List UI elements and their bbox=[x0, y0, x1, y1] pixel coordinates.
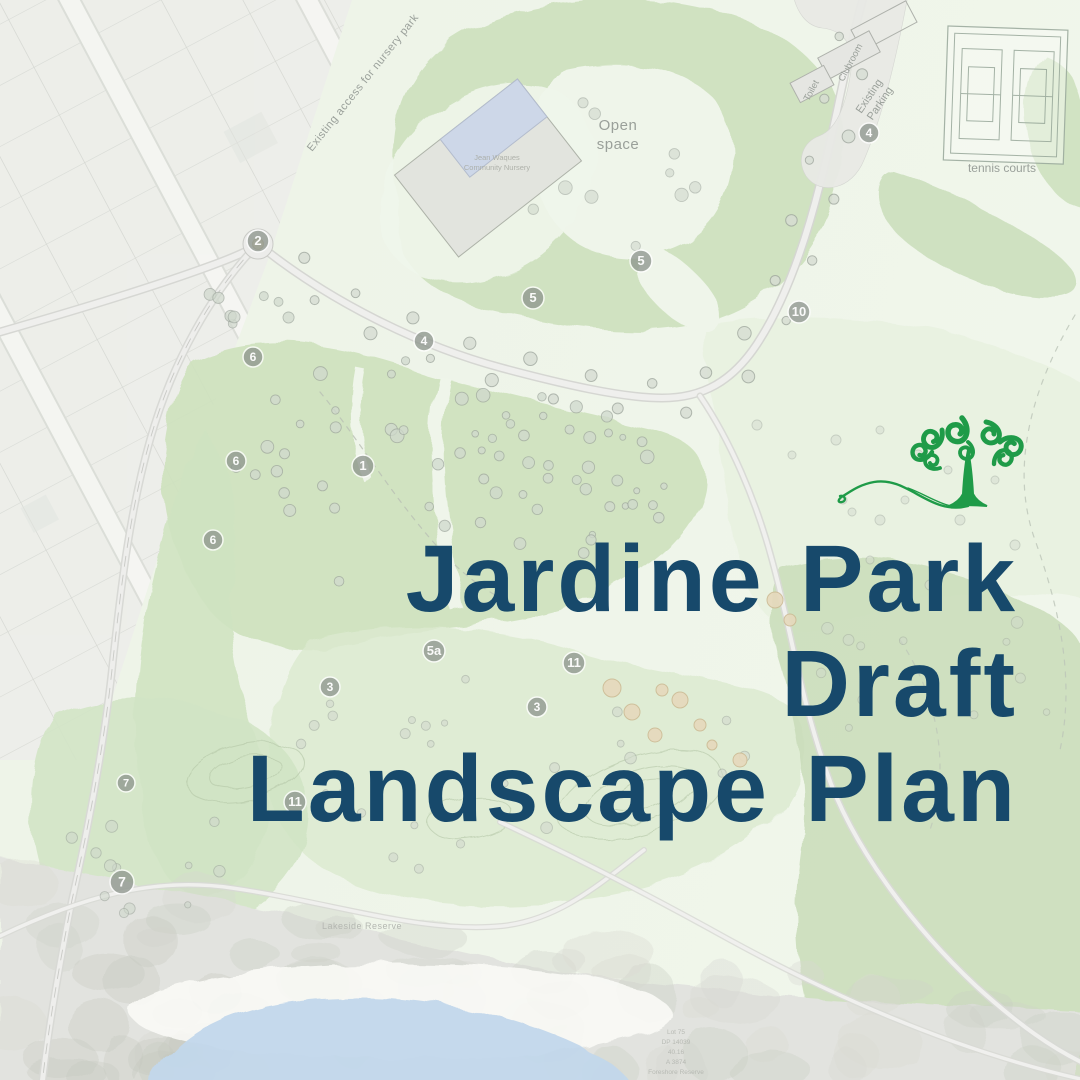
plan-marker: 2 bbox=[247, 230, 269, 252]
svg-text:A 3874: A 3874 bbox=[666, 1059, 687, 1066]
svg-text:6: 6 bbox=[233, 454, 240, 468]
plan-marker: 4 bbox=[414, 331, 434, 351]
poster: 245541066615a11337711 Openspace tennis c… bbox=[0, 0, 1080, 1080]
plan-marker: 10 bbox=[788, 301, 810, 323]
svg-text:6: 6 bbox=[250, 350, 257, 364]
svg-text:7: 7 bbox=[118, 874, 126, 890]
svg-text:40.16: 40.16 bbox=[668, 1049, 685, 1056]
lakeside-reserve-label: Lakeside Reserve bbox=[322, 921, 402, 931]
title-line-3: Landscape Plan bbox=[38, 737, 1018, 842]
svg-text:4: 4 bbox=[421, 334, 428, 348]
svg-text:Foreshore Reserve: Foreshore Reserve bbox=[648, 1069, 704, 1076]
page-title: Jardine Park Draft Landscape Plan bbox=[38, 527, 1018, 842]
plan-marker: 5 bbox=[630, 250, 652, 272]
svg-text:5: 5 bbox=[637, 253, 644, 268]
plan-marker: 4 bbox=[859, 123, 879, 143]
svg-text:5: 5 bbox=[529, 290, 536, 305]
svg-text:Lot 75: Lot 75 bbox=[667, 1029, 685, 1036]
tennis-courts-label: tennis courts bbox=[968, 161, 1036, 175]
title-line-1: Jardine Park bbox=[38, 527, 1018, 632]
plan-marker: 7 bbox=[110, 870, 134, 894]
plan-marker: 6 bbox=[243, 347, 263, 367]
svg-text:DP 14039: DP 14039 bbox=[662, 1039, 691, 1046]
svg-text:2: 2 bbox=[254, 233, 261, 248]
plan-marker: 5 bbox=[522, 287, 544, 309]
tennis-courts bbox=[943, 26, 1068, 164]
svg-text:1: 1 bbox=[359, 458, 366, 473]
plan-marker: 6 bbox=[226, 451, 246, 471]
svg-text:4: 4 bbox=[866, 126, 873, 140]
plan-marker: 1 bbox=[352, 455, 374, 477]
title-line-2: Draft bbox=[38, 632, 1018, 737]
svg-text:10: 10 bbox=[792, 304, 806, 319]
